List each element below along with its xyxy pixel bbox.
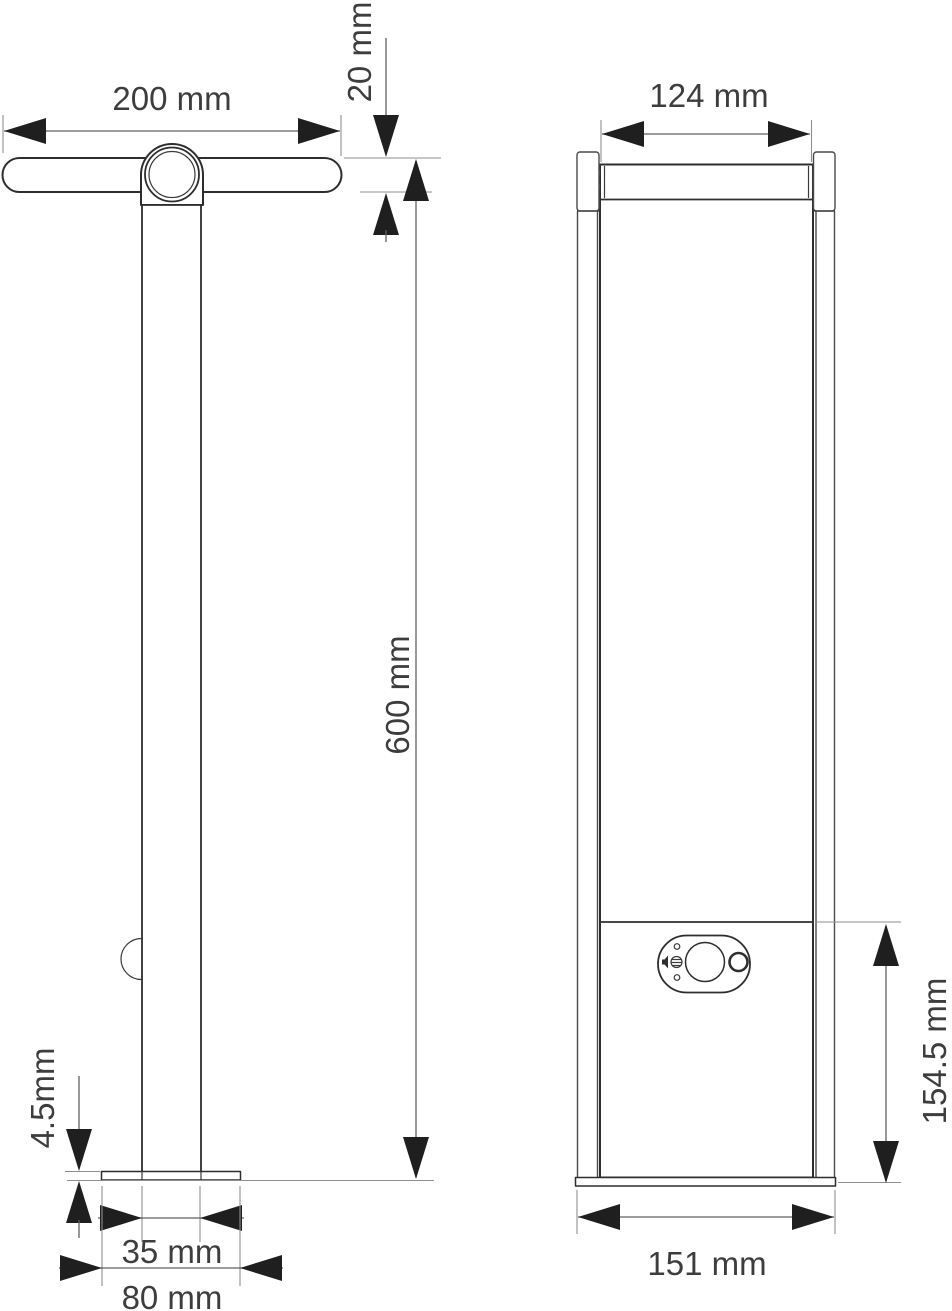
dim-label-base-plate-width: 80 mm [122, 1279, 223, 1311]
technical-drawing-page: 200 mm 20 mm 600 mm 4.5mm [0, 0, 952, 1311]
arrowhead-right-icon [298, 118, 340, 144]
arrowhead-right-icon [768, 121, 810, 147]
pir-dome-icon [686, 943, 725, 982]
dim-control-box-height: 154.5 mm [816, 922, 952, 1183]
left-bracket [577, 152, 599, 211]
pole-side [142, 205, 201, 1172]
lamp-dimension-drawing: 200 mm 20 mm 600 mm 4.5mm [0, 0, 952, 1311]
body-panel-front [600, 165, 813, 1178]
pir-motion-sensor-panel [658, 936, 750, 993]
dim-label-overall-height: 600 mm [379, 635, 416, 754]
arrowhead-left-icon [602, 121, 644, 147]
dim-label-head-thickness: 20 mm [341, 2, 378, 103]
base-plate-side [102, 1172, 241, 1181]
arrowhead-down-icon [66, 1129, 92, 1171]
dim-head-thickness: 20 mm [341, 2, 441, 242]
base-plate-front [576, 1178, 836, 1187]
right-bracket [814, 152, 836, 211]
arrowhead-down-icon [873, 1141, 899, 1183]
dim-label-head-width-front: 124 mm [649, 77, 768, 114]
photocell-button [730, 953, 748, 971]
arrowhead-left-icon [4, 118, 46, 144]
dim-label-control-box-height: 154.5 mm [916, 978, 952, 1125]
pir-sensor-bump-icon [121, 939, 142, 980]
pivot-joint-outer-circle [145, 148, 199, 202]
dim-head-width-front: 124 mm [601, 77, 812, 162]
arrowhead-left-icon [240, 1255, 282, 1281]
arrowhead-left-icon [200, 1205, 242, 1231]
arrowhead-down-icon [403, 1137, 429, 1179]
dim-overall-height: 600 mm [379, 159, 429, 1179]
dim-label-head-width: 200 mm [112, 80, 231, 117]
dim-label-pole-width: 35 mm [122, 1233, 223, 1270]
arrowhead-up-icon [403, 159, 429, 201]
dim-base-plate-thickness: 4.5mm [24, 1048, 100, 1238]
arrowhead-up-icon [66, 1181, 92, 1223]
front-view: 124 mm 154.5 mm 151 mm [576, 77, 952, 1282]
arrowhead-down-icon [373, 115, 399, 157]
side-view: 200 mm 20 mm 600 mm 4.5mm [3, 2, 442, 1311]
dim-base-width-front: 151 mm [577, 1190, 835, 1282]
arrowhead-right-icon [792, 1204, 834, 1230]
arrowhead-left-icon [578, 1204, 620, 1230]
dim-pole-width: 35 mm [98, 1186, 244, 1270]
dim-label-base-width-front: 151 mm [647, 1245, 766, 1282]
arrowhead-up-icon [873, 924, 899, 966]
dim-label-base-plate-thickness: 4.5mm [24, 1048, 61, 1149]
arrowhead-up-icon [373, 193, 399, 235]
arrowhead-right-icon [60, 1255, 102, 1281]
arrowhead-right-icon [100, 1205, 142, 1231]
